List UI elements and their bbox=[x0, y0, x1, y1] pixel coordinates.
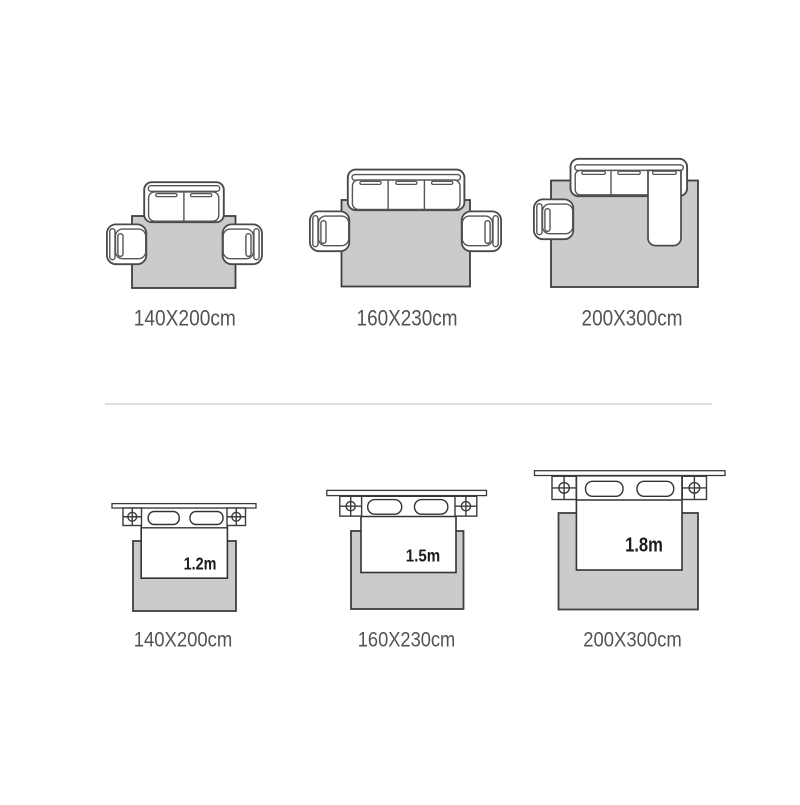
svg-text:140X200cm: 140X200cm bbox=[134, 306, 236, 331]
svg-text:1.8m: 1.8m bbox=[625, 533, 663, 556]
svg-text:160X230cm: 160X230cm bbox=[358, 628, 455, 651]
svg-text:200X300cm: 200X300cm bbox=[582, 306, 683, 331]
svg-text:1.2m: 1.2m bbox=[184, 554, 217, 574]
svg-text:1.5m: 1.5m bbox=[406, 545, 440, 566]
svg-text:160X230cm: 160X230cm bbox=[357, 306, 458, 331]
svg-text:140X200cm: 140X200cm bbox=[134, 628, 233, 651]
svg-text:200X300cm: 200X300cm bbox=[583, 628, 682, 651]
